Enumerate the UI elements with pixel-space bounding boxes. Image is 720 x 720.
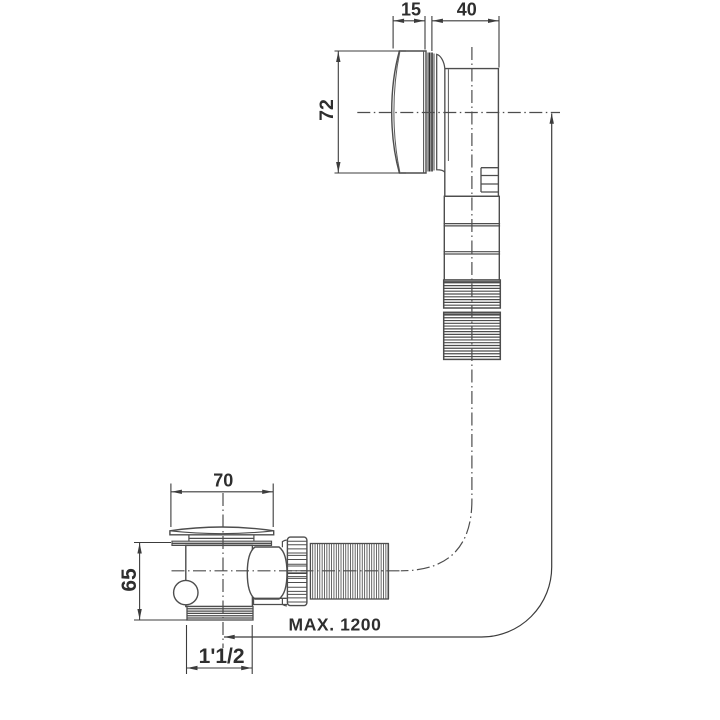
- svg-text:72: 72: [316, 99, 338, 121]
- svg-text:1'1/2: 1'1/2: [199, 645, 245, 668]
- svg-text:65: 65: [118, 568, 141, 592]
- svg-text:40: 40: [457, 0, 477, 20]
- svg-text:15: 15: [401, 0, 421, 20]
- svg-text:70: 70: [213, 470, 233, 490]
- svg-text:MAX. 1200: MAX. 1200: [289, 615, 382, 635]
